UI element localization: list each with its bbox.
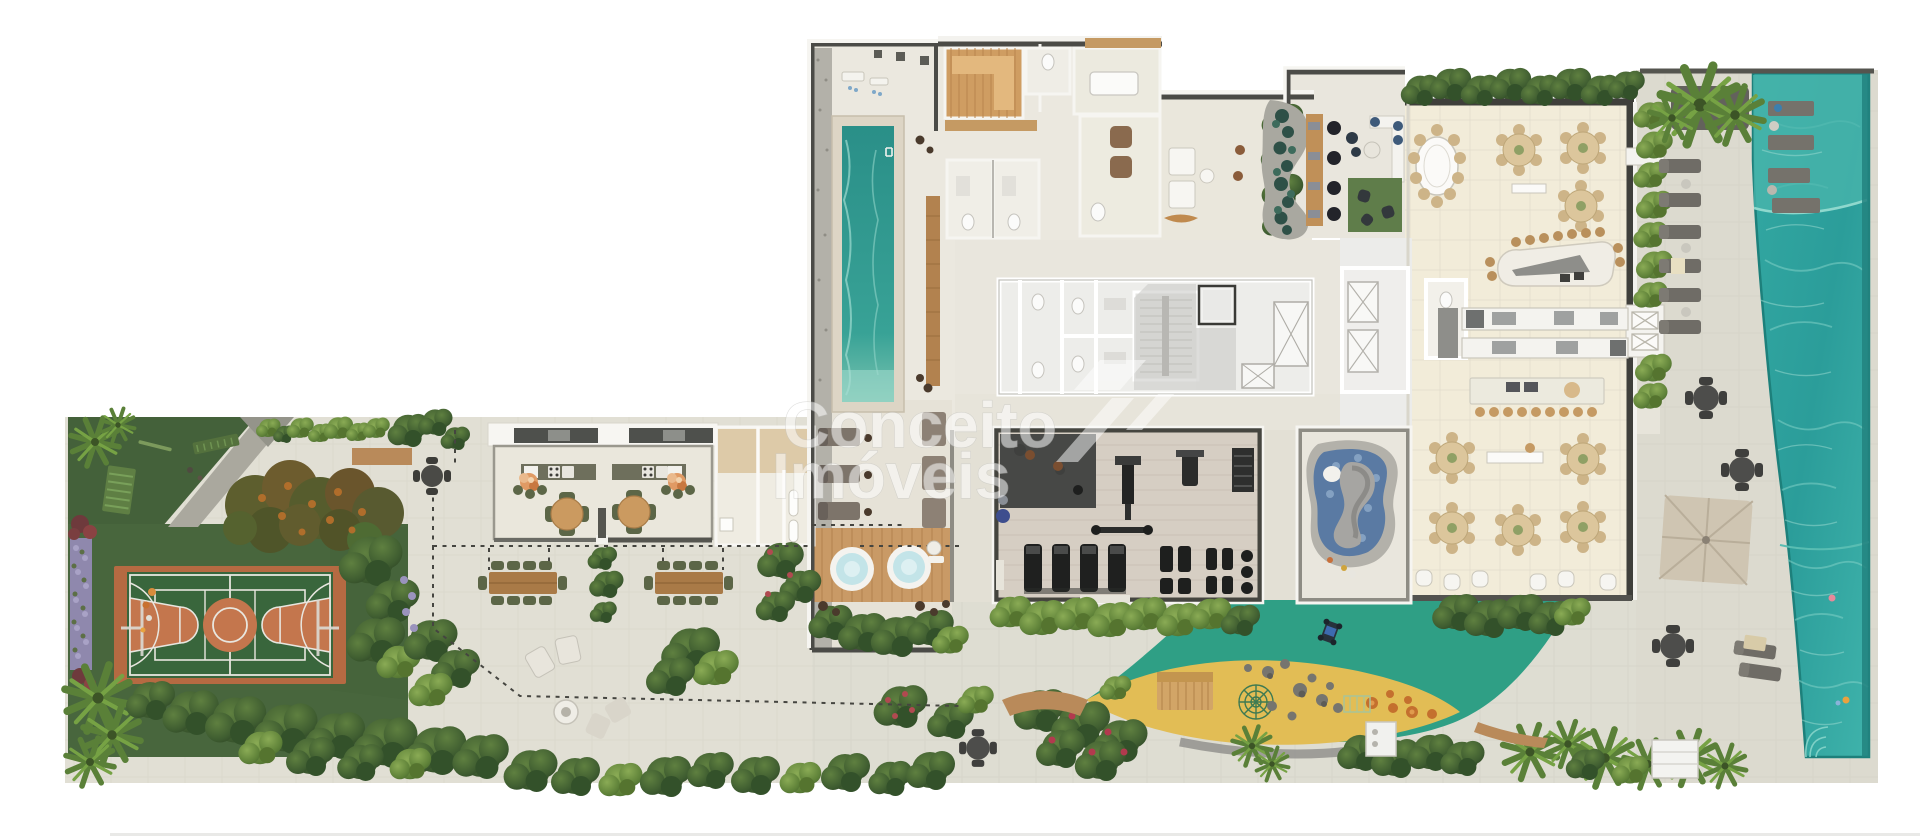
svg-text:Imóveis: Imóveis — [772, 440, 1010, 512]
